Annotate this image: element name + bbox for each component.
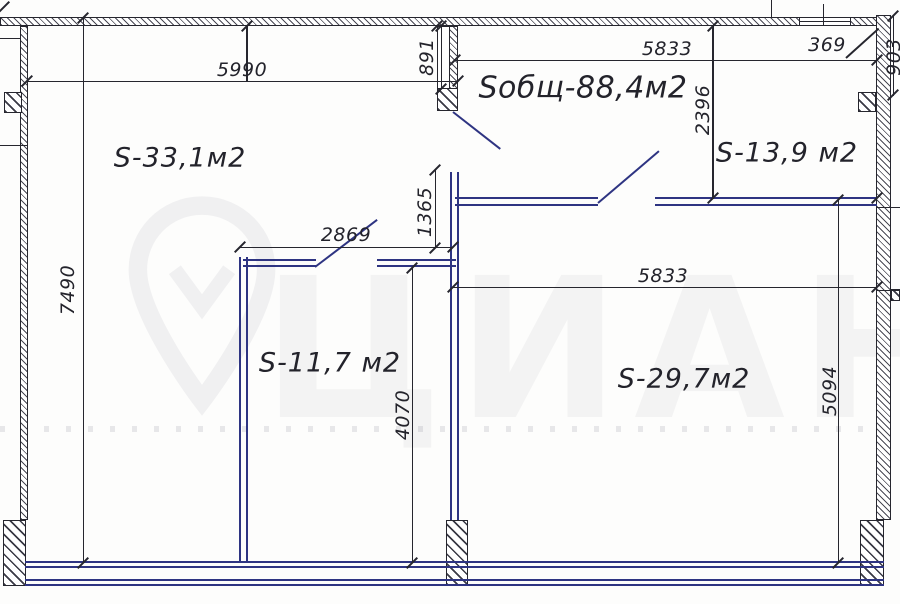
- ext-line-left-a: [0, 38, 20, 39]
- ext-line-right-a: [877, 207, 900, 208]
- room-label-297: S-29,7м2: [618, 364, 751, 395]
- dim-slash-369: [845, 28, 879, 59]
- total-area-label: Sобщ-88,4м2: [479, 71, 688, 106]
- dim-label-2396: 2396: [692, 85, 714, 135]
- window-top-right: [799, 17, 851, 26]
- dim-line-2869: [240, 247, 453, 248]
- column-bottom-middle: [446, 520, 468, 586]
- dim-label-7490: 7490: [57, 265, 79, 315]
- bottom-glazing-band-outer: [25, 561, 884, 568]
- room-label-139: S-13,9 м2: [716, 138, 858, 169]
- dim-line-891: [441, 26, 442, 89]
- ext-line-top-b: [823, 4, 824, 26]
- dim-label-5990: 5990: [217, 59, 267, 81]
- dim-label-4070: 4070: [392, 390, 414, 440]
- dim-label-1365: 1365: [414, 187, 436, 237]
- floor-plan: ЦИАН: [0, 0, 900, 604]
- watermark-map-pin-icon: [128, 193, 276, 428]
- outer-wall-right: [876, 15, 891, 520]
- partition-vertical-main: [450, 172, 459, 520]
- partition-room117-left: [239, 257, 248, 563]
- ext-line-top-a: [771, 0, 772, 17]
- corner-slash-top-left: [0, 1, 10, 14]
- entry-wall-column-hatch-block: [437, 88, 458, 111]
- dim-label-369: 369: [808, 34, 846, 56]
- bottom-glazing-band-inner: [25, 579, 884, 586]
- column-bottom-right: [860, 520, 884, 586]
- dim-label-891: 891: [416, 38, 438, 76]
- door-swing-hall: [597, 150, 659, 203]
- pilaster-right: [858, 92, 876, 112]
- dim-label-903: 903: [883, 38, 900, 76]
- room-label-331: S-33,1м2: [114, 143, 247, 174]
- door-swing-entry: [452, 111, 501, 150]
- dim-label-5833-bottom: 5833: [638, 265, 688, 287]
- dim-line-7490: [83, 18, 84, 563]
- window-glazing-line: [800, 21, 850, 22]
- ext-line-right-b: [877, 290, 900, 291]
- dim-label-2869: 2869: [321, 224, 371, 246]
- dim-line-5990: [27, 81, 458, 82]
- partition-hall-left: [455, 197, 598, 206]
- partition-room117-top-a: [243, 259, 316, 267]
- dim-line-5833-top: [455, 60, 877, 61]
- ext-line-left-b: [0, 145, 27, 146]
- dim-label-5094: 5094: [819, 366, 841, 416]
- room-label-117: S-11,7 м2: [259, 348, 401, 379]
- pilaster-left: [4, 92, 22, 113]
- dim-line-5833-bottom: [453, 287, 877, 288]
- column-bottom-left: [3, 520, 26, 586]
- dim-label-5833-top: 5833: [642, 38, 692, 60]
- partition-hall-right: [655, 197, 877, 206]
